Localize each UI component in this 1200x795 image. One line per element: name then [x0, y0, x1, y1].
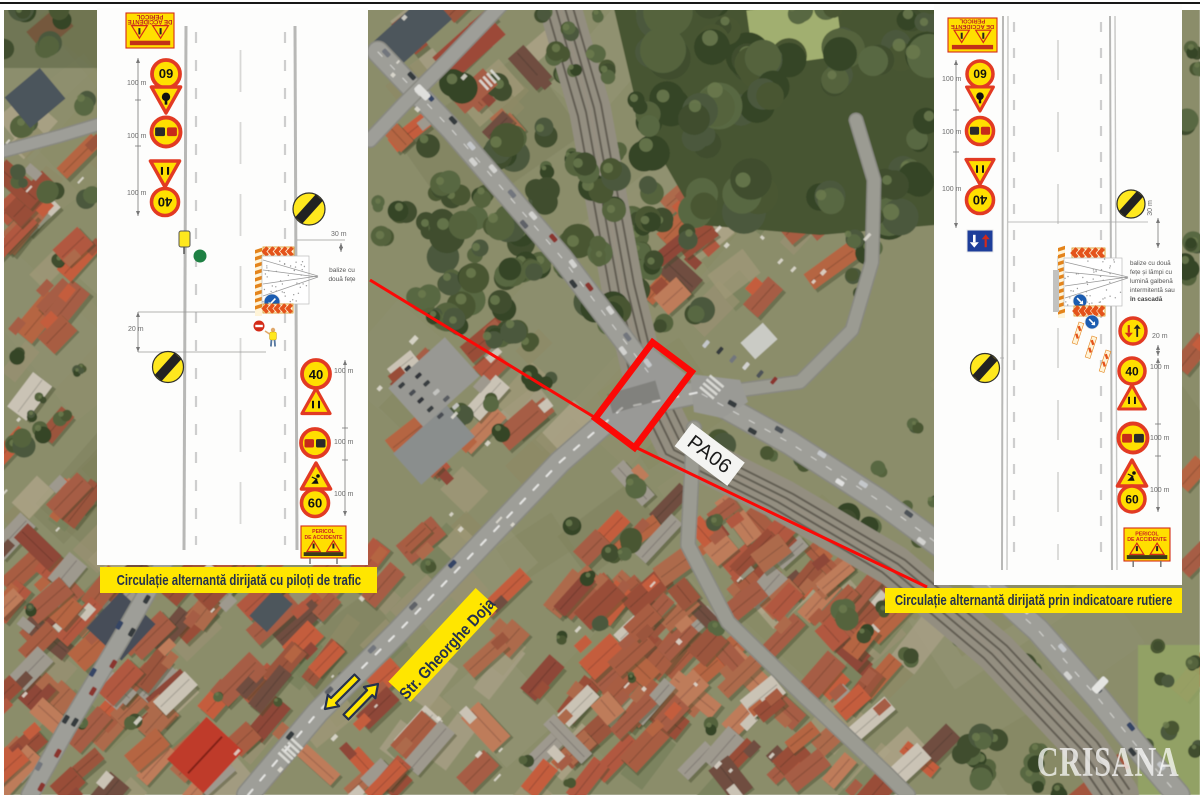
- svg-text:CRISANA: CRISANA: [1037, 738, 1180, 785]
- svg-text:Str. Gheorghe Doja: Str. Gheorghe Doja: [396, 595, 499, 704]
